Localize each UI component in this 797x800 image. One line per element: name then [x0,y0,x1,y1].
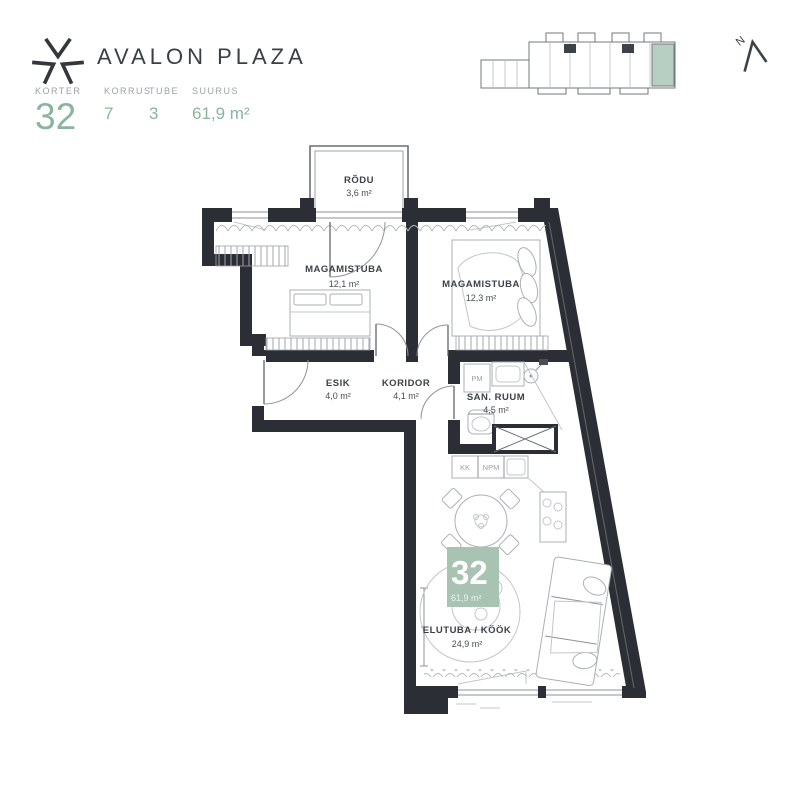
room-koridor-area: 4,1 m² [393,391,419,401]
building-overview [478,20,718,98]
apartment-plan-page: RÕDU 3,6 m² MAGAMISTUBA 12,1 m² MAGAMIST… [0,0,797,800]
sofa-icon [536,557,614,687]
info-tube-label: TUBE [149,86,179,96]
info-korrus-label: KORRUS [104,86,152,96]
room-koridor-name: KORIDOR [382,378,430,389]
room-sanruum-name: SAN. RUUM [467,392,525,403]
info-tube: TUBE 3 [149,86,179,124]
room-rodu-area: 3,6 m² [346,188,372,198]
room-bedroom1-name: MAGAMISTUBA [305,264,383,275]
avalon-logo-icon [30,30,86,88]
overview-highlighted-unit [652,44,674,86]
info-korter-value: 32 [35,98,81,135]
info-suurus: SUURUS 61,9 m² [192,86,250,124]
bed-icon [290,290,370,336]
info-korrus-value: 7 [104,104,152,124]
badge-area: 61,9 m² [451,593,482,603]
info-suurus-value: 61,9 m² [192,104,250,124]
info-korter: KORTER 32 [35,86,81,135]
room-esik-area: 4,0 m² [325,391,351,401]
room-bedroom2-area: 12,3 m² [466,293,497,303]
dining-table-icon [441,488,521,556]
room-bedroom1-area: 12,1 m² [329,279,360,289]
room-esik-name: ESIK [326,378,350,389]
room-elutuba-name: ELUTUBA / KÖÖK [423,625,511,636]
north-label: N [734,34,748,48]
info-suurus-label: SUURUS [192,86,250,96]
room-bedroom2-name: MAGAMISTUBA [442,279,520,290]
info-korter-label: KORTER [35,86,81,96]
washing-machine-label: PM [471,374,482,383]
info-korrus: KORRUS 7 [104,86,152,124]
room-rodu-name: RÕDU [344,175,374,186]
brand-title: AVALON PLAZA [97,44,307,70]
room-sanruum-area: 4,5 m² [483,405,509,415]
badge-number: 32 [451,554,488,591]
shaft-icon [494,426,556,452]
apartment-badge: 32 61,9 m² [447,547,499,607]
info-tube-value: 3 [149,104,179,124]
room-elutuba-area: 24,9 m² [452,639,483,649]
fridge-label: KK [460,463,470,472]
bath-sink-icon [492,362,524,386]
north-compass: N [727,27,779,83]
shower-icon [524,359,562,430]
counter-label: NPM [483,463,500,472]
stove-icon [540,492,566,542]
